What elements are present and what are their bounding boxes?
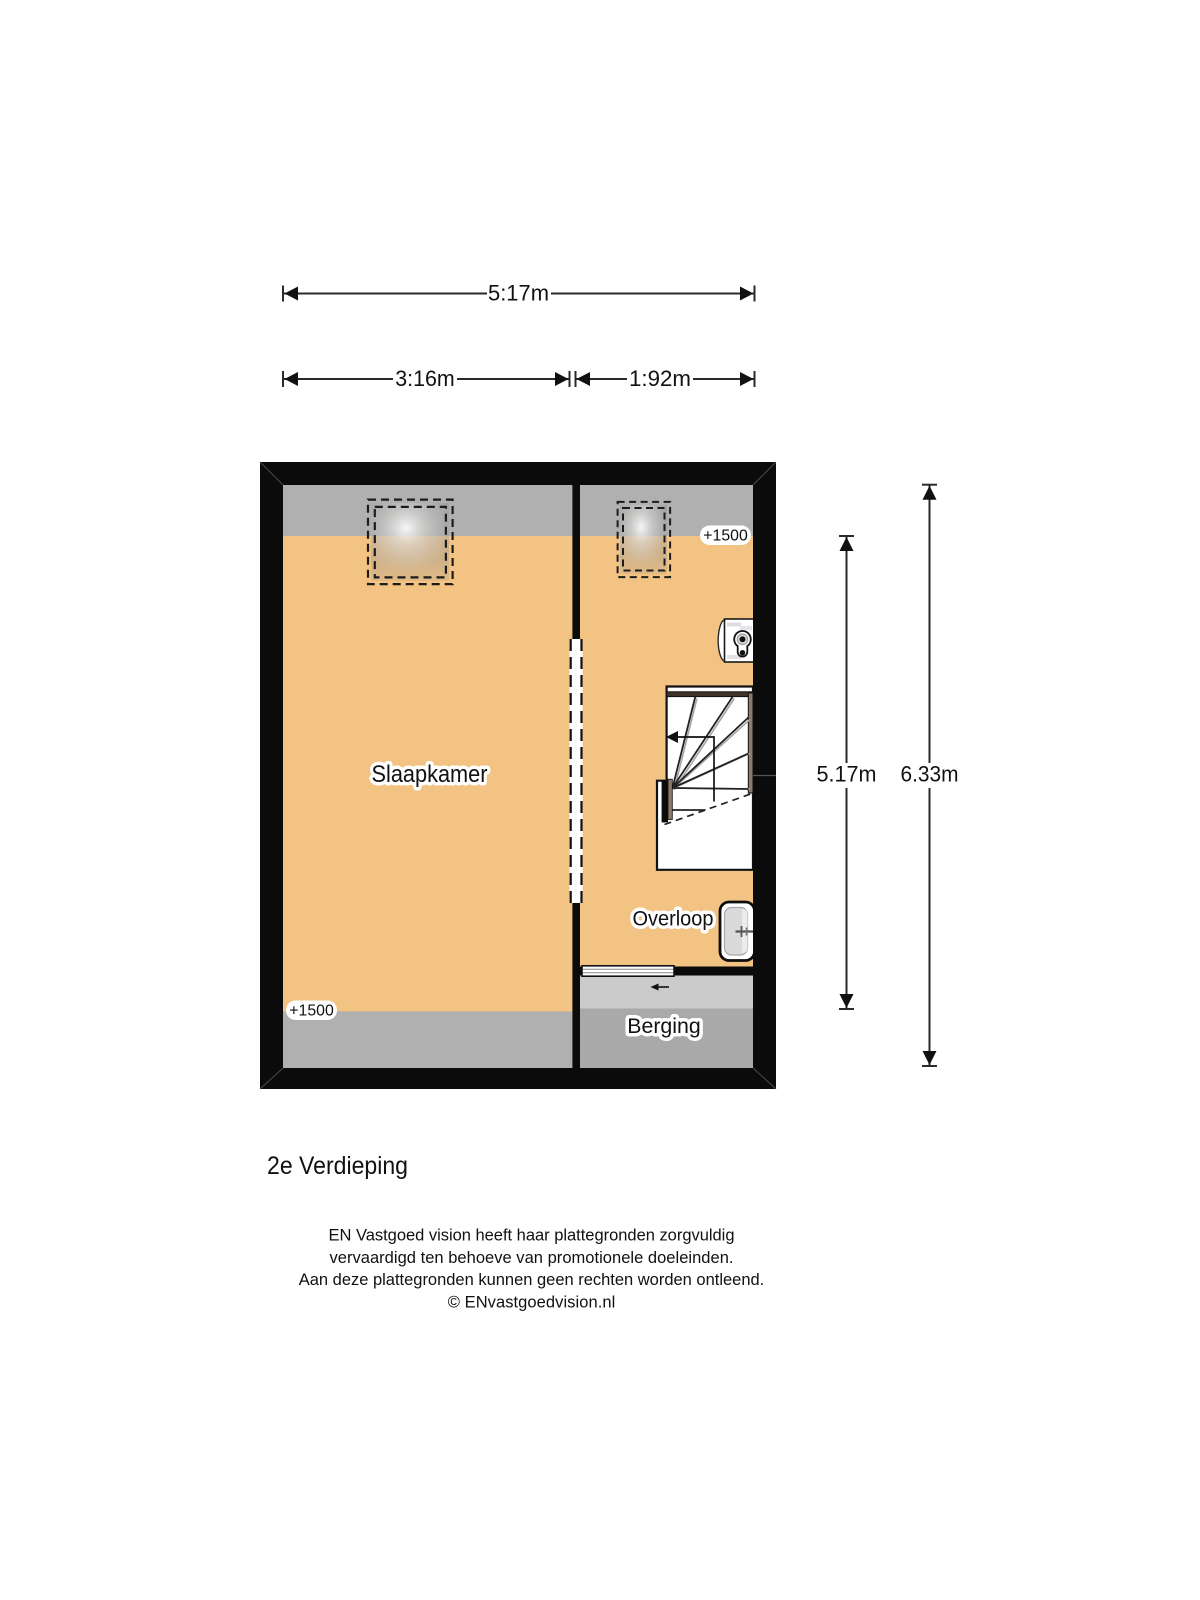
svg-text:Aan deze plattegronden kunnen: Aan deze plattegronden kunnen geen recht… <box>299 1271 765 1289</box>
svg-text:EN Vastgoed vision heeft haar: EN Vastgoed vision heeft haar plattegron… <box>329 1226 735 1244</box>
svg-text:+1500: +1500 <box>703 528 748 545</box>
svg-text:© ENvastgoedvision.nl: © ENvastgoedvision.nl <box>448 1294 616 1312</box>
svg-text:1:92m: 1:92m <box>629 366 691 391</box>
svg-text:Berging: Berging <box>627 1015 701 1038</box>
svg-text:+1500: +1500 <box>289 1003 334 1020</box>
svg-text:Slaapkamer: Slaapkamer <box>372 761 488 788</box>
svg-text:3:16m: 3:16m <box>395 366 455 391</box>
svg-text:5.17m: 5.17m <box>817 762 877 787</box>
svg-text:vervaardigd ten behoeve van pr: vervaardigd ten behoeve van promotionele… <box>330 1249 734 1267</box>
svg-text:5:17m: 5:17m <box>488 281 549 306</box>
svg-text:6.33m: 6.33m <box>901 762 959 787</box>
svg-text:2e Verdieping: 2e Verdieping <box>267 1152 408 1180</box>
svg-text:Overloop: Overloop <box>633 907 714 931</box>
